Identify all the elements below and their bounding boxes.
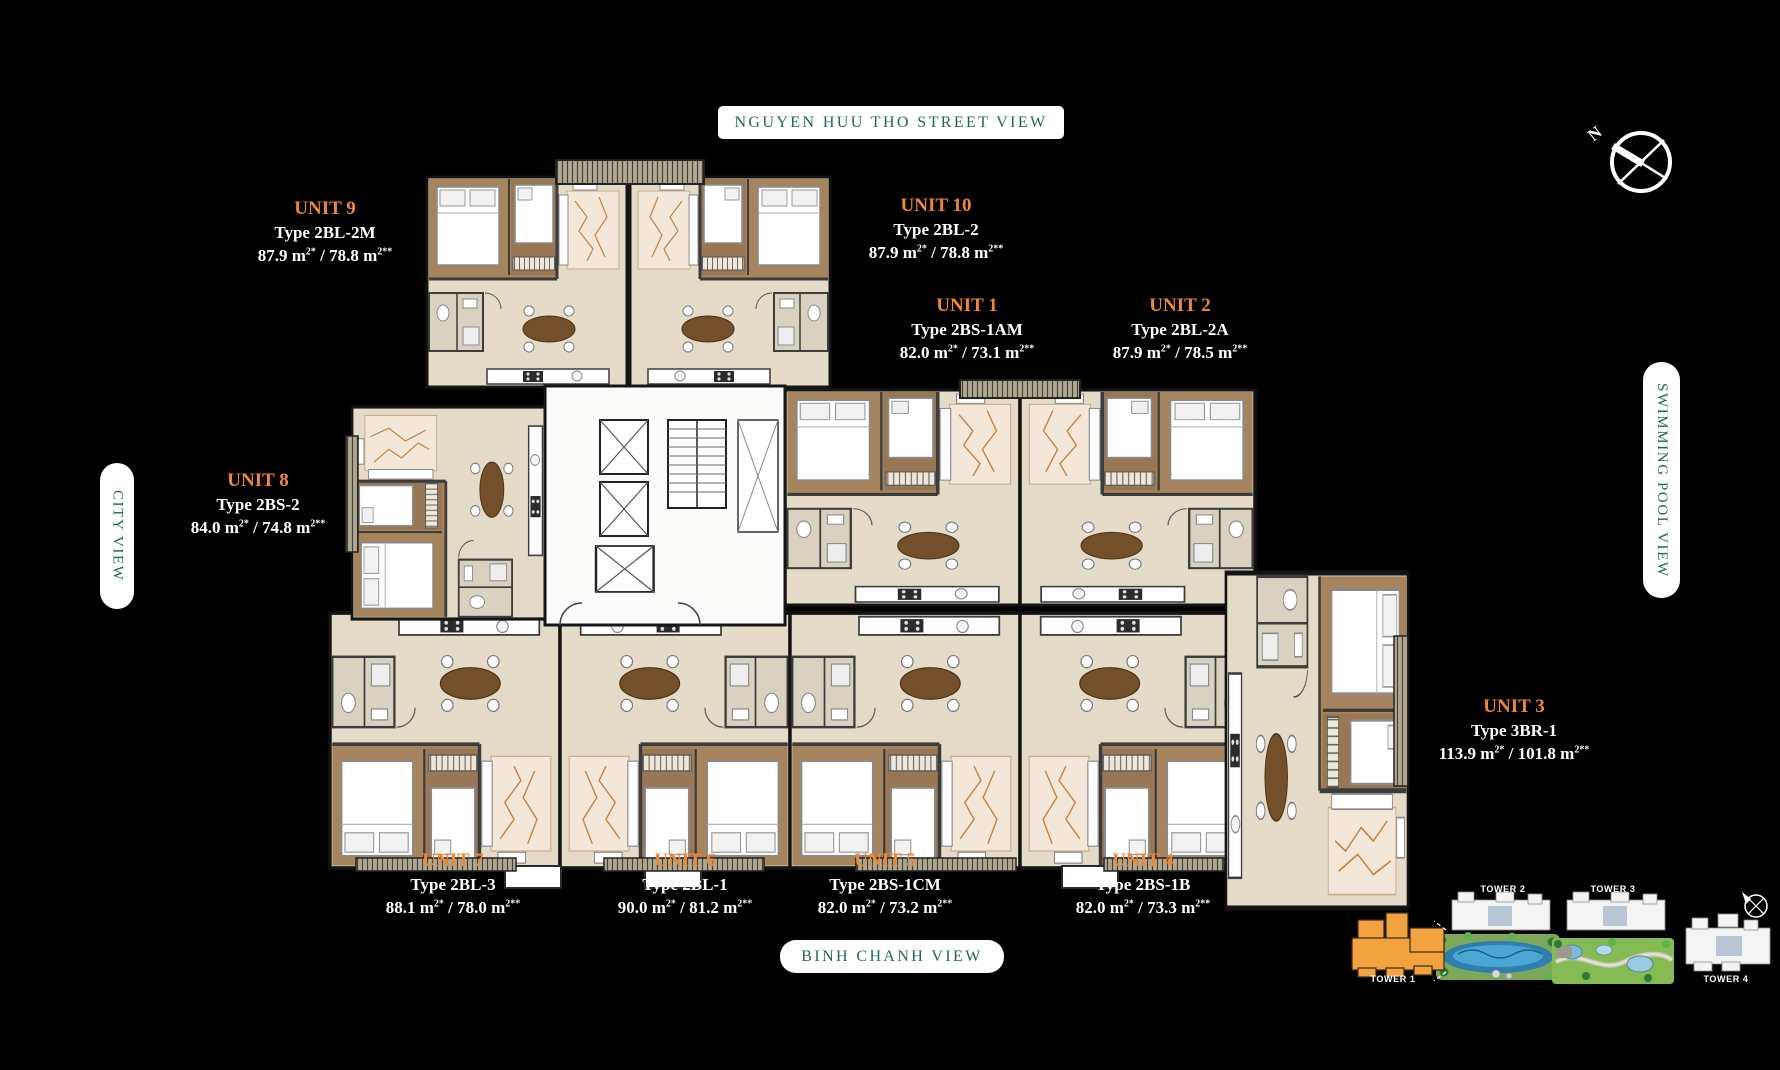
unit-area: 87.9 m2* / 78.8 m2** — [869, 242, 1004, 265]
unit-area: 87.9 m2* / 78.8 m2** — [258, 245, 393, 268]
unit-area: 90.0 m2* / 81.2 m2** — [618, 897, 753, 920]
unit-name: UNIT 8 — [191, 468, 326, 494]
tower-3-label: TOWER 3 — [1590, 884, 1635, 894]
tower-2-label: TOWER 2 — [1480, 884, 1525, 894]
unit-name: UNIT 2 — [1113, 293, 1248, 319]
unit3-plan — [1226, 573, 1408, 908]
unit-type: Type 2BL-1 — [618, 874, 753, 897]
unit-name: UNIT 10 — [869, 193, 1004, 219]
unit-type: Type 2BL-2A — [1113, 319, 1248, 342]
unit4-plan — [1020, 613, 1250, 868]
unit1-plan — [785, 390, 1020, 605]
unit7-plan — [330, 613, 560, 868]
unit-name: UNIT 4 — [1076, 848, 1211, 874]
unit-label-2: UNIT 2 Type 2BL-2A 87.9 m2* / 78.5 m2** — [1113, 293, 1248, 365]
unit6-plan — [560, 613, 790, 868]
unit-name: UNIT 6 — [618, 848, 753, 874]
tower-1-label: TOWER 1 — [1370, 974, 1415, 984]
unit-area: 87.9 m2* / 78.5 m2** — [1113, 342, 1248, 365]
unit-name: UNIT 1 — [900, 293, 1035, 319]
unit-type: Type 2BS-1CM — [818, 874, 953, 897]
unit-label-5: UNIT 5 Type 2BS-1CM 82.0 m2* / 73.2 m2** — [818, 848, 953, 920]
site-tower2-footprint — [1452, 892, 1550, 930]
compass-icon — [1612, 133, 1670, 191]
binh-chanh-view-label: BINH CHANH VIEW — [780, 940, 1004, 973]
site-map — [1352, 892, 1770, 984]
unit-type: Type 2BL-2 — [869, 219, 1004, 242]
unit-label-10: UNIT 10 Type 2BL-2 87.9 m2* / 78.8 m2** — [869, 193, 1004, 265]
core-plan — [545, 386, 785, 625]
unit-area: 82.0 m2* / 73.1 m2** — [900, 342, 1035, 365]
unit9-plan — [427, 177, 627, 387]
unit-name: UNIT 7 — [386, 848, 521, 874]
unit-type: Type 2BS-1AM — [900, 319, 1035, 342]
unit5-plan — [790, 613, 1020, 868]
unit-name: UNIT 5 — [818, 848, 953, 874]
site-tower1-footprint — [1352, 913, 1444, 977]
unit-type: Type 2BL-3 — [386, 874, 521, 897]
unit-type: Type 2BL-2M — [258, 222, 393, 245]
pool-view-label: SWIMMING POOL VIEW — [1643, 362, 1680, 598]
unit-name: UNIT 3 — [1439, 694, 1590, 720]
unit-label-7: UNIT 7 Type 2BL-3 88.1 m2* / 78.0 m2** — [386, 848, 521, 920]
unit-area: 82.0 m2* / 73.3 m2** — [1076, 897, 1211, 920]
floor-plan-page: NGUYEN HUU THO STREET VIEW CITY VIEW SWI… — [0, 0, 1780, 1070]
site-tower3-footprint — [1567, 892, 1665, 930]
unit10-plan — [630, 177, 830, 387]
city-view-label: CITY VIEW — [100, 463, 134, 609]
unit-area: 84.0 m2* / 74.8 m2** — [191, 517, 326, 540]
unit-area: 88.1 m2* / 78.0 m2** — [386, 897, 521, 920]
unit-label-1: UNIT 1 Type 2BS-1AM 82.0 m2* / 73.1 m2** — [900, 293, 1035, 365]
site-tower4-footprint — [1686, 914, 1770, 971]
unit-type: Type 3BR-1 — [1439, 720, 1590, 743]
unit-label-4: UNIT 4 Type 2BS-1B 82.0 m2* / 73.3 m2** — [1076, 848, 1211, 920]
unit-label-8: UNIT 8 Type 2BS-2 84.0 m2* / 74.8 m2** — [191, 468, 326, 540]
street-view-label: NGUYEN HUU THO STREET VIEW — [718, 106, 1064, 139]
site-compass-icon — [1742, 892, 1767, 917]
unit-label-3: UNIT 3 Type 3BR-1 113.9 m2* / 101.8 m2** — [1439, 694, 1590, 766]
unit2-plan — [1020, 390, 1255, 605]
unit-type: Type 2BS-2 — [191, 494, 326, 517]
unit-type: Type 2BS-1B — [1076, 874, 1211, 897]
unit8-plan — [352, 407, 545, 619]
unit-area: 113.9 m2* / 101.8 m2** — [1439, 743, 1590, 766]
unit-area: 82.0 m2* / 73.2 m2** — [818, 897, 953, 920]
unit-name: UNIT 9 — [258, 196, 393, 222]
unit-label-9: UNIT 9 Type 2BL-2M 87.9 m2* / 78.8 m2** — [258, 196, 393, 268]
unit-label-6: UNIT 6 Type 2BL-1 90.0 m2* / 81.2 m2** — [618, 848, 753, 920]
tower-4-label: TOWER 4 — [1703, 974, 1748, 984]
